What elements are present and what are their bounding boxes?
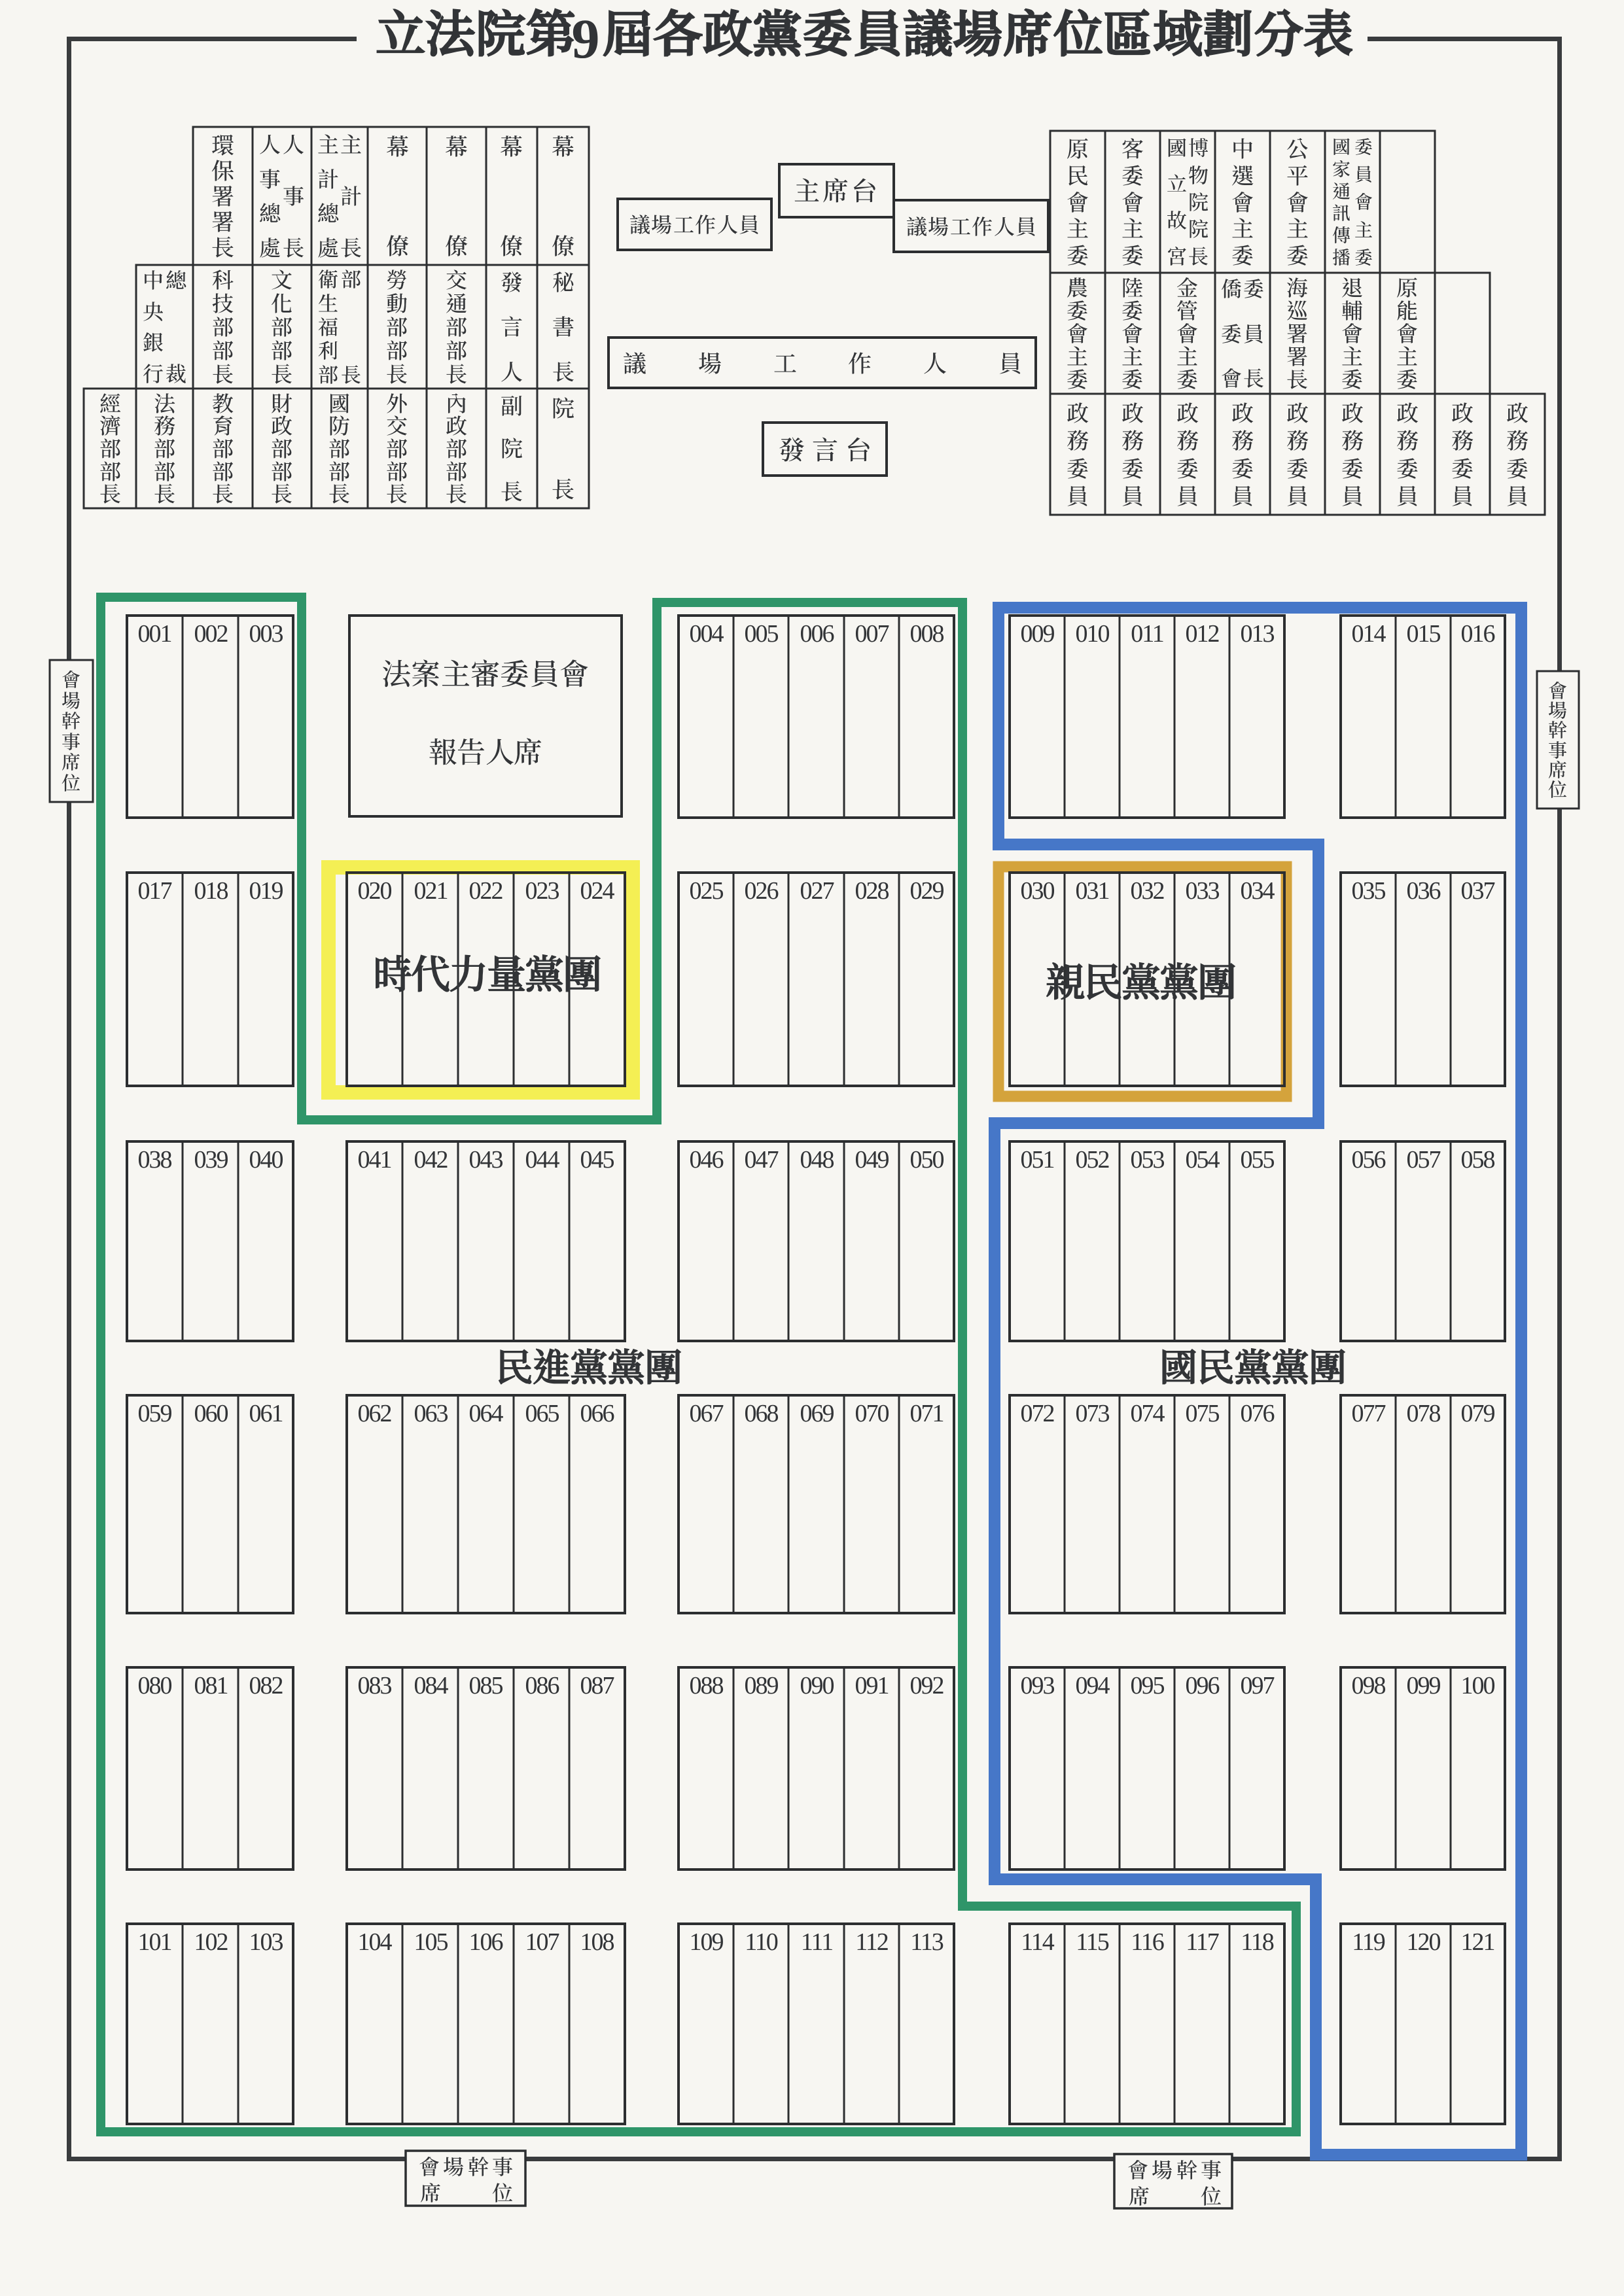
svg-text:011: 011 <box>1131 620 1163 648</box>
svg-text:057: 057 <box>1407 1146 1441 1174</box>
svg-text:004: 004 <box>690 620 724 648</box>
svg-text:049: 049 <box>855 1146 889 1174</box>
svg-text:035: 035 <box>1352 877 1386 905</box>
svg-text:030: 030 <box>1021 877 1055 905</box>
svg-text:002: 002 <box>194 620 228 648</box>
svg-text:068: 068 <box>745 1400 779 1427</box>
svg-text:037: 037 <box>1461 877 1495 905</box>
svg-text:085: 085 <box>469 1672 503 1699</box>
svg-text:027: 027 <box>800 877 834 905</box>
svg-text:017: 017 <box>138 877 172 905</box>
svg-text:044: 044 <box>525 1146 560 1174</box>
svg-text:022: 022 <box>469 877 503 905</box>
svg-text:103: 103 <box>249 1928 283 1956</box>
svg-text:081: 081 <box>194 1672 228 1699</box>
svg-text:097: 097 <box>1241 1672 1275 1699</box>
svg-text:117: 117 <box>1186 1928 1219 1956</box>
svg-text:026: 026 <box>745 877 779 905</box>
svg-text:076: 076 <box>1241 1400 1275 1427</box>
svg-text:006: 006 <box>800 620 834 648</box>
svg-text:039: 039 <box>194 1146 228 1174</box>
svg-text:019: 019 <box>249 877 283 905</box>
svg-text:104: 104 <box>358 1928 393 1956</box>
svg-text:121: 121 <box>1461 1928 1494 1956</box>
svg-text:113: 113 <box>910 1928 944 1956</box>
svg-text:023: 023 <box>525 877 559 905</box>
svg-text:014: 014 <box>1352 620 1386 648</box>
svg-text:082: 082 <box>249 1672 283 1699</box>
svg-text:053: 053 <box>1131 1146 1165 1174</box>
svg-text:9: 9 <box>572 7 600 70</box>
svg-text:119: 119 <box>1352 1928 1385 1956</box>
svg-text:013: 013 <box>1241 620 1275 648</box>
svg-text:025: 025 <box>690 877 724 905</box>
svg-text:120: 120 <box>1407 1928 1441 1956</box>
svg-text:062: 062 <box>358 1400 391 1427</box>
svg-text:078: 078 <box>1407 1400 1441 1427</box>
svg-text:054: 054 <box>1186 1146 1220 1174</box>
svg-text:058: 058 <box>1461 1146 1495 1174</box>
svg-text:071: 071 <box>910 1400 944 1427</box>
svg-text:112: 112 <box>855 1928 888 1956</box>
svg-text:001: 001 <box>138 620 171 648</box>
svg-text:032: 032 <box>1131 877 1164 905</box>
svg-text:060: 060 <box>194 1400 228 1427</box>
svg-text:046: 046 <box>690 1146 724 1174</box>
svg-text:118: 118 <box>1241 1928 1274 1956</box>
svg-text:047: 047 <box>745 1146 779 1174</box>
svg-text:033: 033 <box>1186 877 1220 905</box>
svg-text:072: 072 <box>1021 1400 1054 1427</box>
svg-text:069: 069 <box>800 1400 834 1427</box>
svg-text:099: 099 <box>1407 1672 1441 1699</box>
svg-text:114: 114 <box>1021 1928 1055 1956</box>
svg-text:102: 102 <box>194 1928 228 1956</box>
svg-text:043: 043 <box>469 1146 503 1174</box>
svg-text:080: 080 <box>138 1672 172 1699</box>
svg-text:108: 108 <box>580 1928 614 1956</box>
svg-text:115: 115 <box>1076 1928 1109 1956</box>
svg-text:089: 089 <box>745 1672 779 1699</box>
svg-text:009: 009 <box>1021 620 1055 648</box>
svg-text:110: 110 <box>745 1928 778 1956</box>
svg-text:050: 050 <box>910 1146 944 1174</box>
svg-text:061: 061 <box>249 1400 283 1427</box>
svg-text:045: 045 <box>580 1146 614 1174</box>
svg-text:086: 086 <box>525 1672 559 1699</box>
svg-text:094: 094 <box>1076 1672 1110 1699</box>
svg-text:038: 038 <box>138 1146 172 1174</box>
svg-text:056: 056 <box>1352 1146 1386 1174</box>
svg-text:055: 055 <box>1241 1146 1275 1174</box>
svg-text:024: 024 <box>580 877 615 905</box>
svg-text:074: 074 <box>1131 1400 1165 1427</box>
svg-text:075: 075 <box>1186 1400 1220 1427</box>
svg-text:111: 111 <box>801 1928 832 1956</box>
svg-text:088: 088 <box>690 1672 724 1699</box>
svg-text:116: 116 <box>1131 1928 1164 1956</box>
svg-text:042: 042 <box>414 1146 448 1174</box>
svg-text:101: 101 <box>138 1928 171 1956</box>
svg-text:005: 005 <box>745 620 779 648</box>
svg-text:095: 095 <box>1131 1672 1165 1699</box>
svg-text:003: 003 <box>249 620 283 648</box>
svg-text:064: 064 <box>469 1400 504 1427</box>
svg-text:083: 083 <box>358 1672 392 1699</box>
svg-text:029: 029 <box>910 877 944 905</box>
svg-text:051: 051 <box>1021 1146 1054 1174</box>
svg-text:073: 073 <box>1076 1400 1110 1427</box>
svg-text:028: 028 <box>855 877 889 905</box>
svg-text:040: 040 <box>249 1146 283 1174</box>
svg-text:052: 052 <box>1076 1146 1109 1174</box>
svg-text:090: 090 <box>800 1672 834 1699</box>
svg-text:109: 109 <box>690 1928 724 1956</box>
svg-text:098: 098 <box>1352 1672 1386 1699</box>
svg-text:059: 059 <box>138 1400 172 1427</box>
svg-text:021: 021 <box>414 877 448 905</box>
svg-text:087: 087 <box>580 1672 614 1699</box>
svg-text:070: 070 <box>855 1400 889 1427</box>
svg-text:106: 106 <box>469 1928 503 1956</box>
svg-text:016: 016 <box>1461 620 1495 648</box>
svg-text:012: 012 <box>1186 620 1219 648</box>
svg-text:096: 096 <box>1186 1672 1220 1699</box>
svg-text:020: 020 <box>358 877 392 905</box>
svg-text:077: 077 <box>1352 1400 1386 1427</box>
svg-text:036: 036 <box>1407 877 1441 905</box>
svg-text:048: 048 <box>800 1146 834 1174</box>
svg-text:008: 008 <box>910 620 944 648</box>
svg-text:015: 015 <box>1407 620 1441 648</box>
svg-text:031: 031 <box>1076 877 1109 905</box>
svg-text:007: 007 <box>855 620 889 648</box>
svg-text:084: 084 <box>414 1672 449 1699</box>
svg-text:010: 010 <box>1076 620 1110 648</box>
svg-text:041: 041 <box>358 1146 391 1174</box>
svg-text:063: 063 <box>414 1400 448 1427</box>
svg-text:091: 091 <box>855 1672 889 1699</box>
svg-text:034: 034 <box>1241 877 1275 905</box>
svg-text:092: 092 <box>910 1672 944 1699</box>
svg-text:100: 100 <box>1461 1672 1495 1699</box>
svg-text:079: 079 <box>1461 1400 1495 1427</box>
svg-text:093: 093 <box>1021 1672 1055 1699</box>
svg-text:105: 105 <box>414 1928 448 1956</box>
svg-text:065: 065 <box>525 1400 559 1427</box>
svg-text:067: 067 <box>690 1400 724 1427</box>
svg-text:018: 018 <box>194 877 228 905</box>
svg-text:066: 066 <box>580 1400 614 1427</box>
svg-text:107: 107 <box>525 1928 559 1956</box>
